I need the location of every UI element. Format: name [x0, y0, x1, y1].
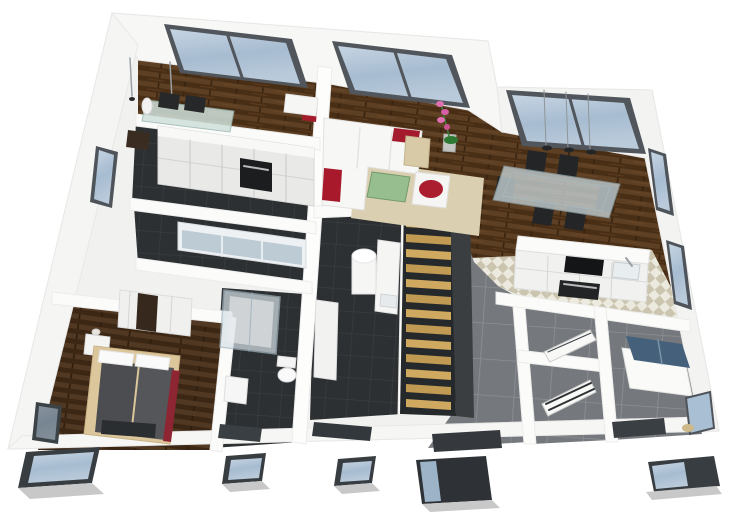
technical-room-basket	[682, 424, 694, 432]
pendant-lamp1-head	[542, 146, 552, 151]
coffee-table-glass	[367, 172, 410, 202]
built-in-oven	[240, 158, 272, 192]
toilet-bowl	[278, 368, 296, 382]
pendant-lamp3-head	[586, 150, 596, 155]
white-side-table	[284, 94, 318, 116]
office-desk-lamp	[142, 98, 152, 114]
office-pendant1-head	[129, 97, 135, 101]
office-chair1	[158, 92, 180, 110]
office-chair2	[184, 95, 206, 113]
left-wall-window2-glass	[36, 406, 58, 440]
armchair-red-cushion	[419, 180, 443, 198]
office-sideboard-dark	[126, 130, 150, 150]
wardrobe-dark-section	[136, 293, 158, 332]
laundry-bin-top	[352, 249, 376, 263]
side-shelf	[404, 136, 430, 168]
exterior-window1-glass	[28, 452, 94, 483]
orchid-bloom4	[444, 124, 450, 130]
floor-plan-render	[0, 0, 750, 529]
wc-cabinet	[314, 300, 338, 380]
orchid-bloom1	[436, 101, 444, 107]
exterior-window5-glass	[652, 462, 688, 489]
orchid-bloom2	[441, 109, 449, 115]
exterior-window2-glass	[228, 458, 262, 480]
orchid-leaves	[444, 136, 458, 144]
nightstand-lamp	[92, 329, 100, 335]
orchid-bloom3	[437, 117, 445, 123]
kitchen-sink	[612, 262, 640, 280]
wc-basin	[380, 294, 397, 308]
bathroom-sink	[224, 376, 248, 404]
pendant-lamp2-head	[564, 148, 574, 153]
toilet-tank	[277, 356, 296, 368]
floorplan-canvas	[0, 0, 750, 529]
exterior-window3-glass	[340, 461, 372, 482]
sofa-red-chaise-cushion	[322, 168, 342, 202]
